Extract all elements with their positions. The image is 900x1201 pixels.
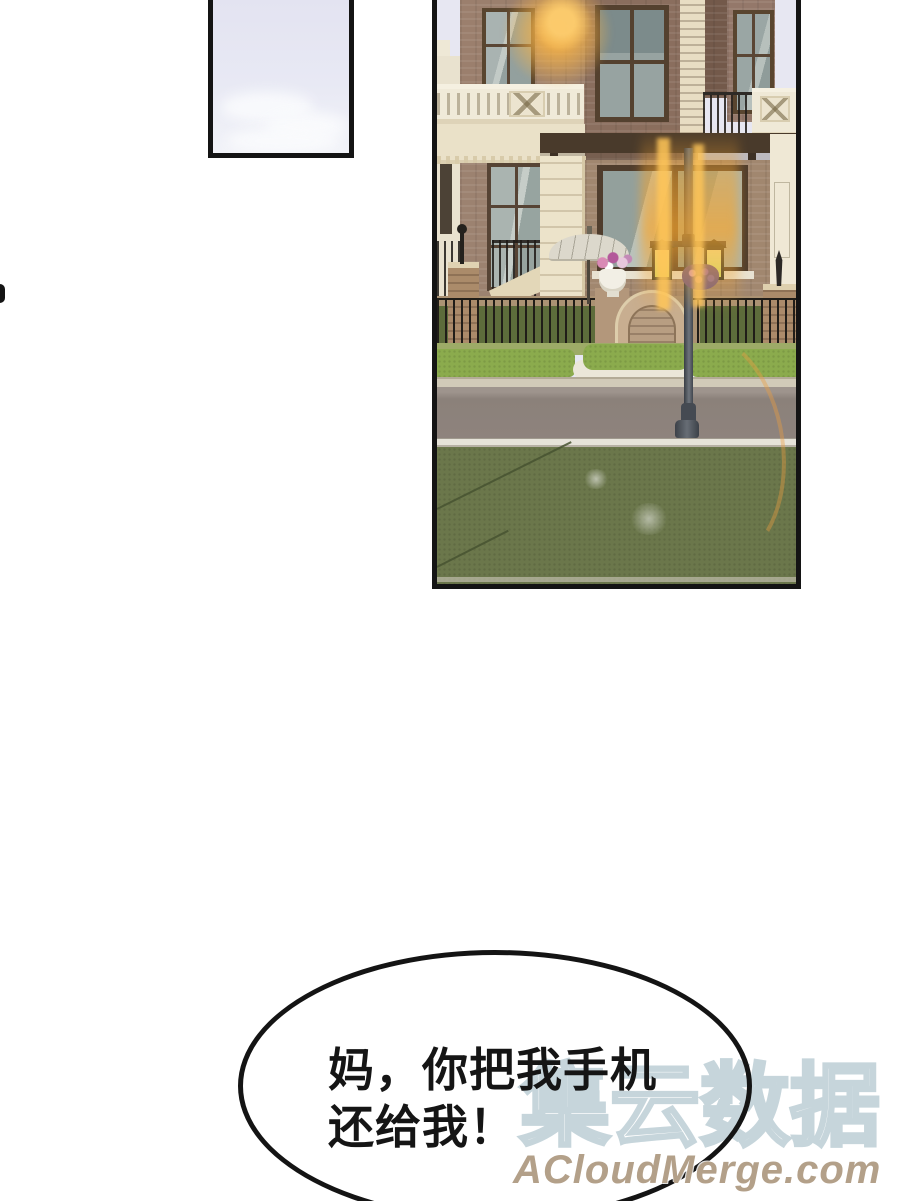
speech-text: 妈，你把我手机 还给我！ [328, 1042, 657, 1156]
lawn-bottom-strip [437, 577, 796, 582]
balustrade-ornament [760, 96, 790, 122]
villa-panel [432, 0, 801, 589]
flower-urn [599, 269, 626, 293]
lawn-seam [437, 530, 509, 568]
comic-page: 集云数据 ACloudMerge.com 妈，你把我手机 还给我！ [0, 0, 900, 1201]
lens-flare-bar [657, 138, 670, 310]
balustrade-ornament [509, 91, 545, 117]
umbrella-pole [587, 260, 590, 304]
window-mullion [737, 54, 770, 57]
speech-line-2: 还给我！ [328, 1099, 657, 1156]
watermark-site: ACloudMerge.com [513, 1150, 881, 1190]
quoin-strip [680, 0, 705, 142]
lawn-seam [437, 441, 572, 510]
wall-sketch-outline [774, 182, 790, 258]
lawn-glow [583, 469, 609, 489]
window-mullion [600, 60, 664, 64]
pillar-lamp-left [460, 232, 464, 264]
pillar-lamp-ball [457, 224, 467, 234]
lens-flare-bar [693, 144, 704, 307]
iron-fence-left [437, 298, 595, 348]
lens-flare-streak [641, 130, 739, 312]
window-mullion [491, 205, 541, 208]
cloud [227, 128, 339, 154]
edge-dot [0, 284, 5, 303]
balustrade-left [437, 84, 584, 124]
hedge-left [437, 349, 575, 377]
flower-urn-foot [607, 291, 619, 297]
villa-scene [437, 0, 796, 584]
porch-pillar [540, 156, 586, 308]
balustrade-right [752, 88, 796, 136]
speech-line-1: 妈，你把我手机 [328, 1042, 657, 1099]
sky-panel [208, 0, 354, 158]
